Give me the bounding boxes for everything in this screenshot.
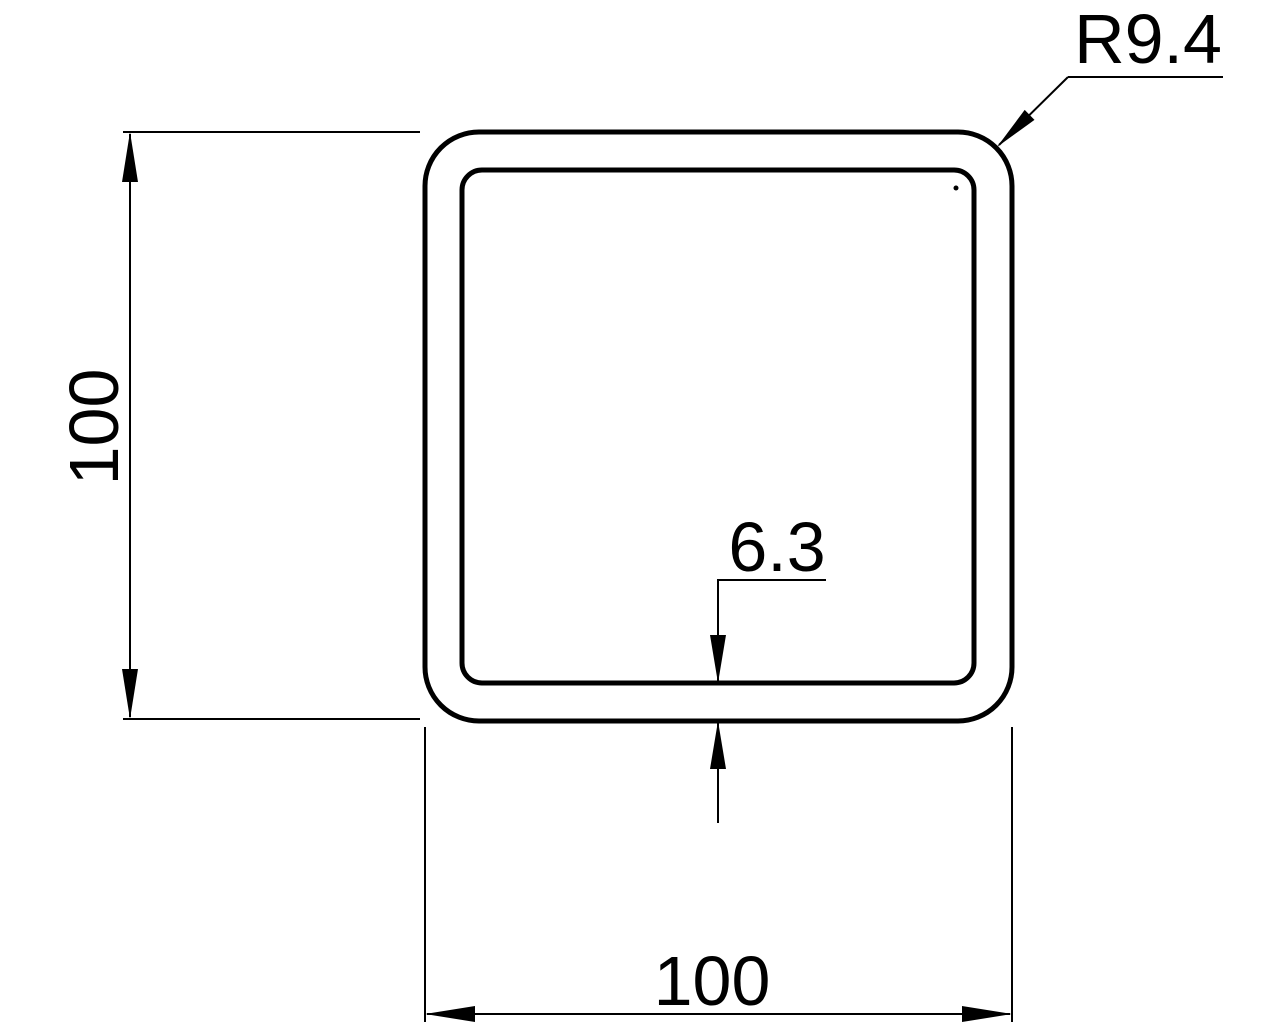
width-arrow-right-icon [962, 1006, 1012, 1022]
wall-thickness-arrow-down-icon [710, 635, 726, 683]
width-dimension-label: 100 [654, 942, 771, 1020]
surface-mark-dot [954, 186, 959, 191]
technical-drawing-canvas: 100 100 6.3 R9.4 [0, 0, 1280, 1024]
corner-radius-label: R9.4 [1074, 0, 1222, 78]
square-tube-cross-section-drawing: 100 100 6.3 R9.4 [0, 0, 1280, 1024]
height-dimension-label: 100 [55, 369, 133, 486]
wall-thickness-label: 6.3 [728, 508, 825, 586]
height-arrow-up-icon [122, 132, 138, 182]
radius-arrow-icon [997, 110, 1035, 147]
wall-thickness-arrow-up-icon [710, 721, 726, 769]
wall-thickness-leader-line [718, 580, 826, 681]
height-arrow-down-icon [122, 669, 138, 719]
width-arrow-left-icon [425, 1006, 475, 1022]
